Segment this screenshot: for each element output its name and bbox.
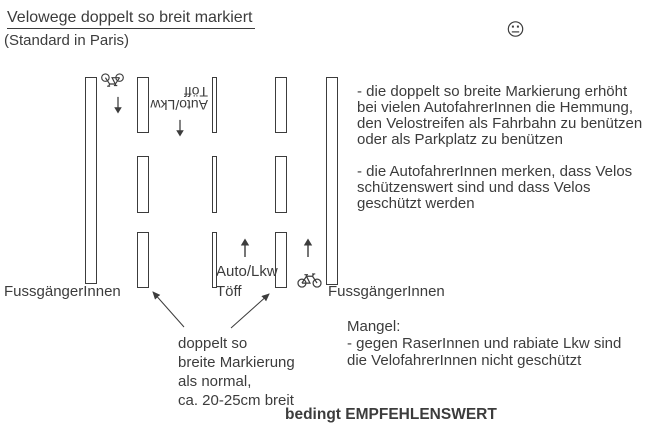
marking-width-note: doppelt so breite Markierung als normal,… <box>178 334 295 410</box>
page-subtitle: (Standard in Paris) <box>4 32 129 49</box>
pedestrians-right-label: FussgängerInnen <box>328 284 445 300</box>
sidewalk-edge-right <box>326 77 338 285</box>
wide-marking-left-segment-2 <box>137 156 149 213</box>
wide-marking-right-segment-1 <box>275 77 287 133</box>
neutral-face-icon <box>505 19 526 40</box>
up-arrow-icon-car-lane <box>239 238 251 258</box>
center-line-segment-1 <box>212 77 217 133</box>
sidewalk-edge-left <box>85 77 97 284</box>
pros-paragraph-1: - die doppelt so breite Markierung erhöh… <box>357 84 649 148</box>
wide-marking-right-segment-2 <box>275 156 287 213</box>
diagram-page: Velowege doppelt so breit markiert (Stan… <box>0 0 659 445</box>
car-lane-up-label: Auto/Lkw Töff <box>216 262 278 302</box>
pedestrians-left-label: FussgängerInnen <box>4 284 121 300</box>
verdict-text: bedingt EMPFEHLENSWERT <box>285 406 497 424</box>
bicycle-icon-up-lane <box>297 271 322 288</box>
down-arrow-icon-bike-lane <box>112 96 124 114</box>
page-title-text: Velowege doppelt so breit markiert <box>7 9 255 29</box>
wide-marking-left-segment-3 <box>137 232 149 288</box>
page-title: Velowege doppelt so breit markiert <box>7 9 255 29</box>
center-line-segment-2 <box>212 156 217 213</box>
car-lane-down-label: Auto/Lkw Töff <box>148 85 208 111</box>
bicycle-icon-down-lane <box>101 73 124 89</box>
up-arrow-icon-bike-lane <box>302 238 314 258</box>
pointer-arrow-left <box>153 292 184 327</box>
mangel-heading: Mangel: <box>347 318 400 335</box>
mangel-body: - gegen RaserInnen und rabiate Lkw sind … <box>347 335 647 369</box>
pros-paragraph-2: - die AutofahrerInnen merken, dass Velos… <box>357 164 649 212</box>
down-arrow-icon-car-lane <box>174 119 186 137</box>
